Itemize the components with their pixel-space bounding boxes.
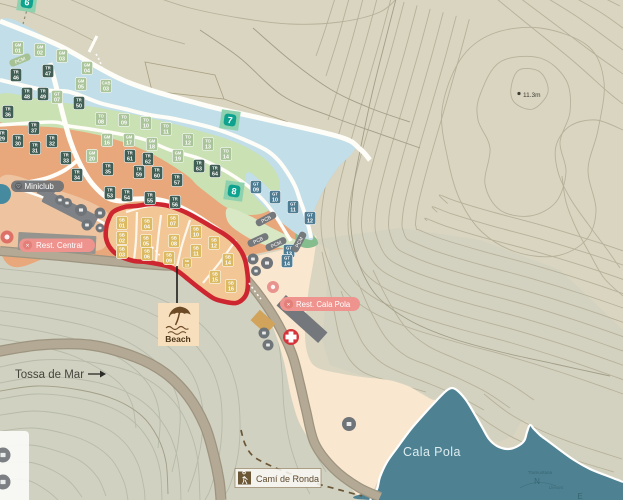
svg-text:34: 34 [74,176,80,182]
svg-text:E: E [577,492,582,500]
svg-text:60: 60 [154,174,160,180]
svg-text:07: 07 [54,98,60,104]
svg-text:TR: TR [74,170,80,175]
svg-text:GM: GM [89,151,96,156]
svg-text:53: 53 [107,194,113,200]
svg-text:TR: TR [174,175,180,180]
svg-text:Tramuntana: Tramuntana [528,470,553,475]
svg-text:13: 13 [205,145,211,151]
svg-text:GM: GM [175,151,182,156]
svg-text:SB: SB [212,272,218,277]
svg-text:SB: SB [166,253,172,258]
svg-text:16: 16 [228,287,234,293]
svg-text:48: 48 [24,95,30,101]
svg-text:19: 19 [175,157,181,163]
svg-text:GM: GM [37,45,44,50]
svg-text:64: 64 [212,172,218,178]
svg-text:61: 61 [127,157,133,163]
svg-text:46: 46 [13,76,19,82]
svg-text:Miniclub: Miniclub [25,182,55,191]
svg-text:SB: SB [211,238,217,243]
svg-text:TR: TR [31,123,37,128]
svg-text:TR: TR [212,166,218,171]
svg-text:TR: TR [124,190,130,195]
svg-text:TO: TO [98,114,104,119]
svg-text:GT: GT [272,192,278,197]
svg-text:03: 03 [103,87,109,93]
svg-text:32: 32 [49,142,55,148]
svg-text:×: × [287,301,291,308]
svg-text:57: 57 [174,181,180,187]
svg-text:Cala Pola: Cala Pola [403,445,461,459]
svg-text:TO: TO [121,115,127,120]
svg-text:SB: SB [193,246,199,251]
svg-text:10: 10 [193,233,199,239]
svg-text:54: 54 [124,196,130,202]
svg-text:31: 31 [32,149,38,155]
svg-text:03: 03 [119,253,125,259]
svg-text:04: 04 [144,225,150,231]
svg-text:TR: TR [49,136,55,141]
svg-text:GM: GM [15,43,22,48]
svg-text:TO: TO [223,149,229,154]
svg-text:62: 62 [145,160,151,166]
svg-text:TR: TR [0,131,5,136]
svg-text:GM: GM [84,63,91,68]
svg-text:30: 30 [15,142,21,148]
svg-text:GM: GM [104,135,111,140]
svg-text:SB: SB [119,247,125,252]
svg-text:TR: TR [63,153,69,158]
svg-text:56: 56 [172,203,178,209]
svg-text:29: 29 [0,137,5,143]
svg-text:47: 47 [45,72,51,78]
svg-text:SB: SB [119,233,125,238]
svg-text:16: 16 [104,141,110,147]
svg-text:02: 02 [37,51,43,57]
svg-text:11: 11 [193,252,199,258]
svg-text:TR: TR [154,168,160,173]
svg-text:♡: ♡ [16,183,21,190]
svg-text:TR: TR [24,89,30,94]
svg-text:TR: TR [105,164,111,169]
svg-text:GT: GT [307,213,313,218]
svg-text:02: 02 [119,239,125,245]
svg-text:Camí de Ronda: Camí de Ronda [256,474,319,484]
svg-text:TR: TR [145,154,151,159]
svg-text:04: 04 [84,69,90,75]
svg-text:TR: TR [32,143,38,148]
svg-text:TR: TR [40,89,46,94]
svg-text:14: 14 [223,155,229,161]
svg-text:55: 55 [147,199,153,205]
svg-text:SB: SB [119,218,125,223]
svg-text:20: 20 [89,157,95,163]
svg-text:63: 63 [196,167,202,173]
svg-text:TR: TR [136,167,142,172]
svg-text:17: 17 [126,141,132,147]
svg-text:01: 01 [15,49,21,55]
svg-text:10: 10 [143,124,149,130]
svg-text:TR: TR [147,193,153,198]
svg-text:SB: SB [143,236,149,241]
svg-text:11: 11 [163,130,169,136]
svg-text:GT: GT [253,182,259,187]
svg-text:TR: TR [13,70,19,75]
svg-text:SB: SB [144,249,150,254]
svg-text:08: 08 [98,120,104,126]
svg-text:Beach: Beach [165,334,191,344]
svg-text:N: N [534,477,540,486]
svg-text:TR: TR [172,197,178,202]
svg-text:06: 06 [144,255,150,261]
svg-text:09: 09 [121,121,127,127]
svg-text:Tossa de Mar: Tossa de Mar [15,369,84,381]
svg-text:Rest. Central: Rest. Central [36,241,83,250]
svg-text:TR: TR [196,161,202,166]
svg-text:49: 49 [40,95,46,101]
svg-text:GT: GT [286,246,292,251]
svg-text:TR: TR [15,136,21,141]
svg-text:TR: TR [76,98,82,103]
svg-text:09: 09 [166,259,172,265]
svg-text:01: 01 [119,224,125,230]
svg-text:TO: TO [143,118,149,123]
svg-text:GM: GM [126,135,133,140]
svg-text:×: × [26,242,30,249]
svg-text:TR: TR [127,151,133,156]
svg-text:08: 08 [171,242,177,248]
svg-text:11: 11 [290,208,296,214]
svg-text:12: 12 [185,141,191,147]
svg-text:15: 15 [212,278,218,284]
svg-text:33: 33 [63,159,69,165]
svg-text:CAB: CAB [102,81,111,86]
svg-text:10: 10 [272,198,278,204]
svg-text:Llevant: Llevant [549,485,564,490]
svg-text:SB: SB [171,236,177,241]
svg-text:11.3m: 11.3m [523,92,541,99]
svg-text:03: 03 [59,57,65,63]
svg-text:50: 50 [76,104,82,110]
svg-text:GM: GM [59,51,66,56]
svg-text:SB: SB [170,216,176,221]
svg-text:TR: TR [107,188,113,193]
svg-text:GT: GT [284,256,290,261]
svg-text:35: 35 [105,170,111,176]
svg-text:SB: SB [225,255,231,260]
svg-text:14: 14 [225,261,231,267]
svg-text:GT: GT [54,92,60,97]
svg-text:TO: TO [163,124,169,129]
svg-text:TO: TO [205,139,211,144]
svg-text:GM: GM [149,139,156,144]
svg-text:09: 09 [253,188,259,194]
svg-text:Rest. Cala Pola: Rest. Cala Pola [296,300,351,309]
svg-text:07: 07 [170,222,176,228]
svg-text:05: 05 [78,85,84,91]
svg-text:TR: TR [45,66,51,71]
svg-text:TO: TO [185,135,191,140]
svg-text:05: 05 [143,242,149,248]
svg-text:14: 14 [284,262,290,268]
svg-text:18: 18 [149,145,155,151]
svg-text:GT: GT [290,202,296,207]
svg-text:SB: SB [193,227,199,232]
svg-text:12: 12 [211,244,217,250]
svg-text:37: 37 [31,129,37,135]
svg-text:12: 12 [307,219,313,225]
svg-text:59: 59 [136,173,142,179]
svg-text:SB: SB [144,219,150,224]
svg-text:GM: GM [78,79,85,84]
svg-text:SB: SB [228,281,234,286]
svg-text:TR: TR [5,107,11,112]
svg-text:36: 36 [5,113,11,119]
